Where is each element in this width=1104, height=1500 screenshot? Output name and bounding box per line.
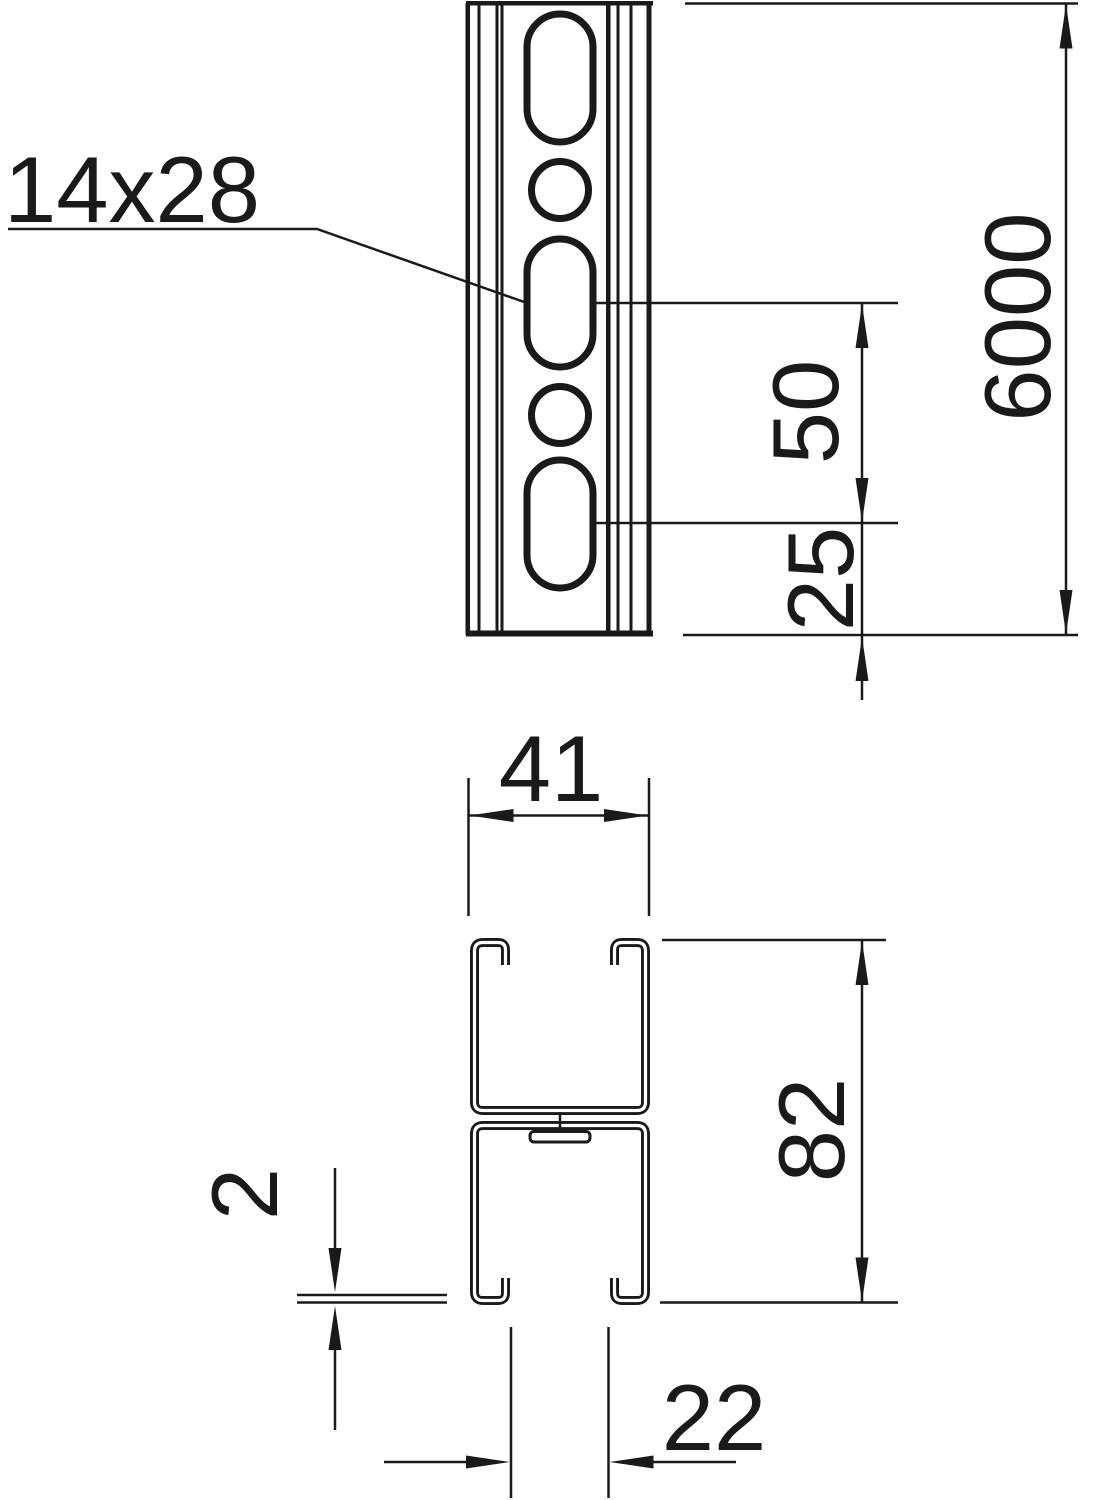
arrow-width-right [604,809,648,822]
section-weld-tab [530,1132,590,1143]
arrow-height-down [856,1258,869,1302]
total-length-label: 6000 [965,212,1070,421]
arrow-thickness-up [329,1306,342,1350]
section-bottom-channel-outer [475,1126,646,1301]
profile-height-label: 82 [759,1078,864,1183]
rail-left-outer-line [466,3,471,635]
rail-perforations [527,14,593,588]
round-hole-2 [532,387,589,444]
rail-right-bend-line-1 [617,3,620,635]
arrow-thickness-down [329,1248,342,1292]
arrow-opening-left [610,1456,654,1469]
rail-bottom-edge [466,631,653,637]
rail-left-lip-line-2 [501,3,504,635]
slot-size-label: 14x28 [4,137,260,242]
end-offset-label: 25 [768,527,873,632]
profile-width-label: 41 [499,716,604,821]
thickness-label: 2 [192,1168,297,1220]
arrow-offset-up [856,637,869,681]
arrow-length-down [1060,590,1073,634]
arrow-length-up [1060,5,1073,49]
rail-left-bend-line [478,3,481,635]
dim-thickness [297,1168,447,1430]
round-hole-1 [532,162,589,219]
technical-drawing: 14x28 50 25 6000 [0,0,1104,1500]
section-top-channel-inner [475,943,646,1111]
hole-pitch-label: 50 [753,360,858,465]
rail-left-lip-line-1 [496,3,499,635]
rail-right-lip-line [606,3,611,635]
slot-1 [527,14,593,142]
rail-right-bend-line-2 [630,3,633,635]
section-view [475,943,646,1301]
rail-top-edge [466,1,653,6]
section-bottom-channel-inner [475,1126,646,1301]
arrow-pitch-down [856,478,869,522]
arrow-pitch-up [856,304,869,348]
slot-2 [527,239,593,367]
slot-opening-label: 22 [662,1365,767,1470]
arrow-opening-right [466,1456,510,1469]
drawing-page: 14x28 50 25 6000 [0,0,1104,1500]
arrow-height-up [856,941,869,985]
slot-3 [527,460,593,588]
rail-front-view [466,1,654,637]
rail-right-outer-line [647,3,652,635]
section-top-channel-outer [475,943,646,1111]
